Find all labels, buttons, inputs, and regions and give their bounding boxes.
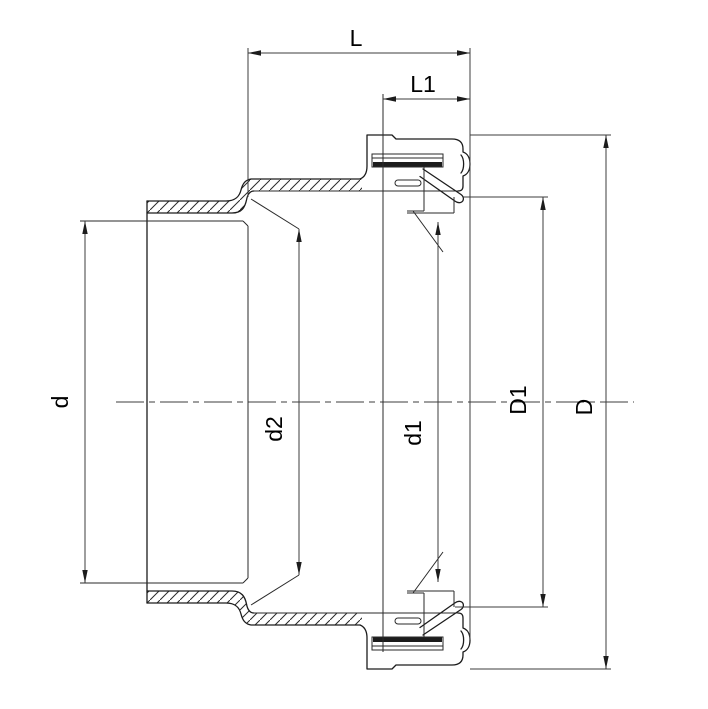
dim-label-L1: L1: [410, 71, 436, 97]
dim-label-d2: d2: [261, 416, 287, 442]
drawing-sheet: L L1 d d2 d1 D1: [0, 0, 708, 709]
interior-edges: [80, 94, 383, 652]
section-hatch-top: [147, 179, 362, 213]
dim-label-D: D: [571, 399, 597, 416]
part-outline-bottom: [147, 552, 470, 669]
part-outline-top: [147, 135, 470, 252]
section-hatch-bottom: [147, 591, 362, 625]
dim-label-L: L: [350, 25, 363, 51]
dim-label-d1: d1: [400, 420, 426, 446]
dim-label-D1: D1: [505, 385, 531, 414]
dimension-d: d: [47, 221, 88, 583]
technical-drawing-canvas: L L1 d d2 d1 D1: [0, 0, 708, 709]
dimension-L: L: [248, 25, 470, 197]
dim-label-d: d: [47, 396, 73, 409]
dimension-L1: L1: [383, 48, 470, 640]
